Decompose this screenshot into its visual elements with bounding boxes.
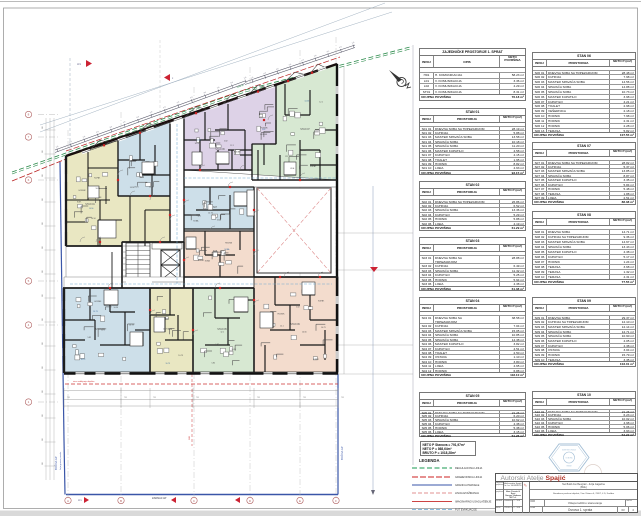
svg-text:8: 8 bbox=[28, 113, 30, 117]
svg-text:A: A bbox=[67, 499, 69, 503]
svg-text:10.73: 10.73 bbox=[208, 212, 213, 214]
svg-text:300: 300 bbox=[42, 150, 44, 153]
svg-text:12.1: 12.1 bbox=[101, 330, 105, 332]
svg-text:12.1: 12.1 bbox=[285, 156, 289, 158]
svg-text:375: 375 bbox=[123, 121, 126, 124]
svg-text:300: 300 bbox=[42, 126, 44, 129]
svg-text:375: 375 bbox=[203, 92, 206, 95]
svg-text:300: 300 bbox=[42, 462, 44, 465]
svg-text:14.56: 14.56 bbox=[301, 150, 306, 152]
svg-text:linija granice parcele: linija granice parcele bbox=[60, 451, 62, 470]
svg-text:HODNIK: HODNIK bbox=[79, 190, 87, 192]
svg-text:795: 795 bbox=[153, 397, 156, 399]
svg-text:REGULACIONA LINIJA: REGULACIONA LINIJA bbox=[455, 466, 483, 470]
svg-text:KUPAT.: KUPAT. bbox=[310, 165, 317, 168]
svg-text:12.1: 12.1 bbox=[197, 216, 201, 218]
svg-text:GRANICA PARCELE: GRANICA PARCELE bbox=[455, 483, 480, 487]
svg-text:375: 375 bbox=[96, 131, 99, 134]
svg-text:HODNIK: HODNIK bbox=[94, 301, 102, 303]
svg-text:5: 5 bbox=[28, 279, 30, 283]
svg-text:6: 6 bbox=[28, 178, 30, 182]
svg-text:795: 795 bbox=[124, 397, 127, 399]
svg-text:300: 300 bbox=[42, 294, 44, 297]
svg-text:375: 375 bbox=[217, 87, 220, 90]
svg-text:KOMORA: KOMORA bbox=[566, 457, 573, 460]
svg-text:300: 300 bbox=[42, 198, 44, 201]
svg-text:375: 375 bbox=[190, 96, 193, 99]
svg-text:300: 300 bbox=[42, 390, 44, 393]
svg-text:SOBA: SOBA bbox=[193, 220, 199, 223]
svg-text:375: 375 bbox=[230, 82, 233, 85]
svg-text:375: 375 bbox=[136, 116, 139, 119]
svg-text:7: 7 bbox=[28, 135, 30, 139]
svg-text:10.73: 10.73 bbox=[321, 327, 326, 329]
svg-text:375: 375 bbox=[109, 126, 112, 129]
svg-text:ARHITEKTONSKA: ARHITEKTONSKA bbox=[562, 449, 576, 452]
svg-text:5.82: 5.82 bbox=[217, 219, 221, 221]
svg-text:GRAĐEVINSKA LINIJA: GRAĐEVINSKA LINIJA bbox=[455, 475, 482, 479]
svg-text:KUPAT.: KUPAT. bbox=[198, 259, 205, 262]
svg-text:12.1: 12.1 bbox=[220, 332, 224, 334]
svg-text:HODNIK: HODNIK bbox=[260, 134, 268, 136]
svg-text:D: D bbox=[249, 499, 252, 503]
svg-text:300: 300 bbox=[42, 342, 44, 345]
svg-text:300: 300 bbox=[42, 318, 44, 321]
svg-text:2980: 2980 bbox=[189, 436, 191, 440]
svg-text:375: 375 bbox=[69, 141, 72, 144]
svg-text:PP1: PP1 bbox=[78, 500, 83, 502]
svg-text:KUH.: KUH. bbox=[77, 202, 82, 204]
svg-text:5.82: 5.82 bbox=[296, 306, 300, 308]
svg-text:14.56: 14.56 bbox=[113, 307, 118, 309]
svg-text:HODNIK: HODNIK bbox=[278, 314, 286, 316]
svg-text:14.56: 14.56 bbox=[95, 188, 100, 190]
svg-text:5.82: 5.82 bbox=[215, 344, 219, 346]
svg-text:GRB 08: GRB 08 bbox=[237, 84, 245, 88]
svg-text:795: 795 bbox=[303, 397, 306, 399]
svg-text:SOBA: SOBA bbox=[224, 248, 230, 251]
svg-text:375: 375 bbox=[289, 64, 292, 67]
svg-text:STAN 09: STAN 09 bbox=[290, 323, 300, 326]
svg-text:795: 795 bbox=[67, 397, 70, 399]
svg-text:14.56: 14.56 bbox=[197, 139, 202, 141]
svg-text:STAN 01: STAN 01 bbox=[85, 203, 95, 206]
svg-text:S02: S02 bbox=[140, 176, 145, 179]
svg-text:B: B bbox=[120, 499, 122, 503]
svg-text:STAN 06: STAN 06 bbox=[215, 148, 225, 151]
svg-text:10.73: 10.73 bbox=[195, 143, 200, 145]
svg-text:300: 300 bbox=[42, 270, 44, 273]
svg-text:4: 4 bbox=[28, 323, 30, 327]
svg-text:ivica udaljenja objekta: ivica udaljenja objekta bbox=[73, 380, 95, 383]
svg-text:KUH.: KUH. bbox=[290, 168, 295, 170]
svg-text:795: 795 bbox=[257, 397, 260, 399]
svg-text:375: 375 bbox=[352, 42, 355, 45]
svg-text:5.82: 5.82 bbox=[87, 337, 91, 339]
svg-text:IMAGINARNO USAGLAŠENJE: IMAGINARNO USAGLAŠENJE bbox=[455, 499, 492, 504]
svg-text:KUH.: KUH. bbox=[135, 187, 140, 189]
svg-text:300: 300 bbox=[42, 414, 44, 417]
svg-text:E: E bbox=[299, 499, 301, 503]
svg-text:12.1: 12.1 bbox=[230, 145, 234, 147]
svg-text:14.56: 14.56 bbox=[305, 101, 310, 103]
svg-text:375: 375 bbox=[163, 106, 166, 109]
svg-text:C: C bbox=[193, 499, 196, 503]
svg-text:STAN 07: STAN 07 bbox=[300, 128, 310, 131]
svg-text:LINIJA ETAŽIRANJA: LINIJA ETAŽIRANJA bbox=[455, 490, 479, 495]
svg-text:1: 1 bbox=[28, 400, 30, 404]
svg-text:KUPAT.: KUPAT. bbox=[94, 176, 101, 179]
svg-text:14.56: 14.56 bbox=[91, 218, 96, 220]
svg-text:ZADNJA GP: ZADNJA GP bbox=[152, 496, 167, 500]
svg-text:10.73: 10.73 bbox=[165, 363, 170, 365]
svg-text:795: 795 bbox=[196, 397, 199, 399]
svg-text:14.56: 14.56 bbox=[89, 208, 94, 210]
svg-text:375: 375 bbox=[301, 59, 304, 62]
svg-text:KUPAT.: KUPAT. bbox=[313, 358, 320, 361]
svg-text:300: 300 bbox=[42, 366, 44, 369]
svg-text:300: 300 bbox=[42, 438, 44, 441]
svg-text:KUPAT.: KUPAT. bbox=[318, 299, 325, 302]
svg-text:S07: S07 bbox=[213, 206, 218, 209]
svg-text:795: 795 bbox=[341, 397, 344, 399]
svg-text:S04: S04 bbox=[168, 328, 173, 331]
svg-text:300: 300 bbox=[42, 246, 44, 249]
svg-text:300: 300 bbox=[42, 174, 44, 177]
svg-text:12.1: 12.1 bbox=[280, 326, 284, 328]
svg-text:SOBA: SOBA bbox=[205, 259, 211, 262]
svg-text:5.82: 5.82 bbox=[224, 141, 228, 143]
svg-text:375: 375 bbox=[150, 111, 153, 114]
svg-text:14.56: 14.56 bbox=[302, 332, 307, 334]
svg-text:10.73: 10.73 bbox=[129, 325, 134, 327]
svg-text:10.73: 10.73 bbox=[81, 359, 86, 361]
svg-text:14.56: 14.56 bbox=[231, 349, 236, 351]
svg-text:375: 375 bbox=[314, 55, 317, 58]
svg-text:PP2: PP2 bbox=[77, 64, 82, 66]
svg-text:BOČNA GP: BOČNA GP bbox=[339, 446, 344, 460]
svg-text:375: 375 bbox=[83, 136, 86, 139]
svg-text:10.73: 10.73 bbox=[149, 187, 154, 189]
svg-text:F: F bbox=[335, 499, 337, 503]
svg-text:375: 375 bbox=[339, 46, 342, 49]
svg-text:BOČNA GP: BOČNA GP bbox=[53, 456, 58, 470]
svg-text:12.1: 12.1 bbox=[319, 102, 323, 104]
svg-text:PUT EVAKUACIJE: PUT EVAKUACIJE bbox=[455, 508, 477, 512]
svg-text:300: 300 bbox=[42, 222, 44, 225]
svg-text:375: 375 bbox=[56, 146, 59, 149]
svg-text:375: 375 bbox=[177, 101, 180, 104]
svg-text:2: 2 bbox=[172, 78, 174, 80]
svg-text:5.82: 5.82 bbox=[212, 363, 216, 365]
svg-text:10.73: 10.73 bbox=[178, 355, 183, 357]
svg-text:SRBIJE: SRBIJE bbox=[566, 466, 571, 468]
svg-text:5.82: 5.82 bbox=[262, 129, 266, 131]
svg-text:HODNIK: HODNIK bbox=[234, 151, 242, 153]
svg-text:375: 375 bbox=[326, 51, 329, 54]
svg-text:10.73: 10.73 bbox=[163, 329, 168, 331]
svg-text:S08: S08 bbox=[213, 250, 218, 253]
svg-text:375: 375 bbox=[244, 77, 247, 80]
svg-text:10.73: 10.73 bbox=[93, 311, 98, 313]
svg-text:HODNIK: HODNIK bbox=[225, 242, 233, 244]
